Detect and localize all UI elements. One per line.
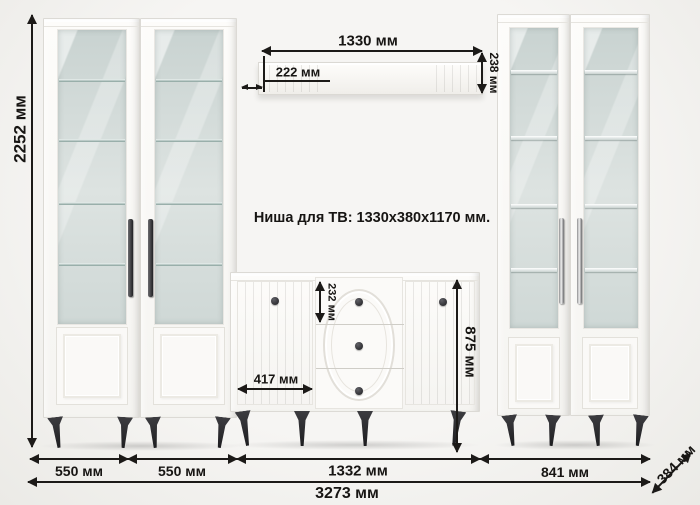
- cabinet-shelf: [511, 268, 557, 272]
- right-cabinet-2-bottom-panel: [582, 337, 638, 409]
- panel-frame: [63, 334, 121, 398]
- left-cabinet-2-handle: [148, 219, 153, 297]
- glass-shelf: [156, 202, 222, 205]
- dim-arrow-left-cabinet-2-width: [128, 458, 237, 460]
- dim-extension-line: [263, 56, 265, 92]
- right-cabinet-1: [497, 14, 570, 416]
- dim-label-right-section-width: 841 мм: [541, 465, 589, 479]
- dim-arrow-shelf-height: [481, 53, 483, 93]
- left-cabinet-1-bottom-panel: [56, 327, 128, 405]
- glass-shelf: [59, 263, 125, 266]
- right-cabinet-1-handle: [559, 218, 564, 304]
- panel-frame: [160, 334, 218, 398]
- left-cabinet-2: [140, 18, 237, 418]
- left-cabinet-1-glass-door: [57, 29, 127, 325]
- glass-shelf: [59, 139, 125, 142]
- dim-arrow-center-section-width: [237, 458, 480, 460]
- dim-label-center-section-width: 1332 мм: [328, 464, 388, 479]
- chest-right-door-knob: [439, 298, 447, 306]
- right-cabinet-1-bottom-panel: [508, 337, 560, 409]
- dim-arrow-left-cabinet-1-width: [30, 458, 128, 460]
- glass-shelf: [59, 79, 125, 82]
- dim-label-left-cabinet-1-width: 550 мм: [55, 464, 103, 478]
- right-cabinet-2-handle: [577, 218, 582, 304]
- furniture-dimension-diagram: 2252 мм 1330 мм 222 мм 238 мм Ниша для Т…: [0, 0, 700, 505]
- dim-arrow-chest-door-width: [238, 388, 312, 390]
- floor-shadow-left: [38, 441, 244, 451]
- cabinet-shelf: [585, 268, 637, 272]
- panel-frame: [515, 344, 553, 402]
- dim-arrow-right-section-width: [480, 458, 650, 460]
- dim-label-left-cabinet-2-width: 550 мм: [158, 464, 206, 478]
- dim-label-top-drawer-height: 232 мм: [326, 283, 337, 321]
- dim-arrow-chest-height: [456, 280, 458, 452]
- glass-shelf: [156, 263, 222, 266]
- drawer-knob-middle: [355, 342, 363, 350]
- right-cabinet-1-glass-door: [509, 27, 559, 329]
- chest-left-door-knob: [271, 297, 279, 305]
- dim-label-depth: 384 мм: [654, 442, 697, 486]
- cabinet-shelf: [511, 70, 557, 74]
- left-cabinet-1-handle: [128, 219, 133, 297]
- panel-frame: [589, 344, 631, 402]
- tv-niche-note: Ниша для ТВ: 1330x380x1170 мм.: [254, 211, 490, 226]
- dim-arrow-total-width: [28, 481, 650, 483]
- glass-shelf: [156, 139, 222, 142]
- floor-shadow-right: [493, 440, 657, 450]
- floor-shadow-center: [228, 440, 482, 450]
- cabinet-shelf: [585, 70, 637, 74]
- drawer-knob-bottom: [355, 387, 363, 395]
- dim-arrow-top-drawer-height: [319, 282, 321, 322]
- tv-chest: [230, 272, 480, 412]
- left-cabinet-2-glass-door: [154, 29, 224, 325]
- dim-label-shelf-inset: 222 мм: [276, 66, 321, 79]
- right-cabinet-2-glass-door: [583, 27, 639, 329]
- drawer-knob-top: [355, 298, 363, 306]
- dim-leader-line: [264, 80, 330, 82]
- dim-arrow-shelf-inset: [242, 87, 262, 89]
- drawer-separator: [316, 324, 404, 325]
- dim-label-chest-door-width: 417 мм: [254, 373, 299, 386]
- dim-label-shelf-height: 238 мм: [488, 52, 500, 93]
- right-cabinet-2: [570, 14, 650, 416]
- glass-shelf: [156, 79, 222, 82]
- left-cabinet-2-bottom-panel: [153, 327, 225, 405]
- cabinet-shelf: [511, 204, 557, 208]
- cabinet-shelf: [511, 136, 557, 140]
- dim-label-niche-width: 1330 мм: [338, 34, 398, 49]
- dim-arrow-total-height: [31, 15, 33, 447]
- drawer-separator: [316, 368, 404, 369]
- dim-label-chest-height: 875 мм: [463, 326, 478, 377]
- dim-label-total-height: 2252 мм: [12, 95, 29, 163]
- cabinet-shelf: [585, 204, 637, 208]
- dim-label-total-width: 3273 мм: [315, 486, 379, 502]
- cabinet-shelf: [585, 136, 637, 140]
- dim-arrow-niche-width: [262, 50, 482, 52]
- left-cabinet-1: [43, 18, 140, 418]
- glass-shelf: [59, 202, 125, 205]
- shelf-fluting-right: [429, 65, 479, 92]
